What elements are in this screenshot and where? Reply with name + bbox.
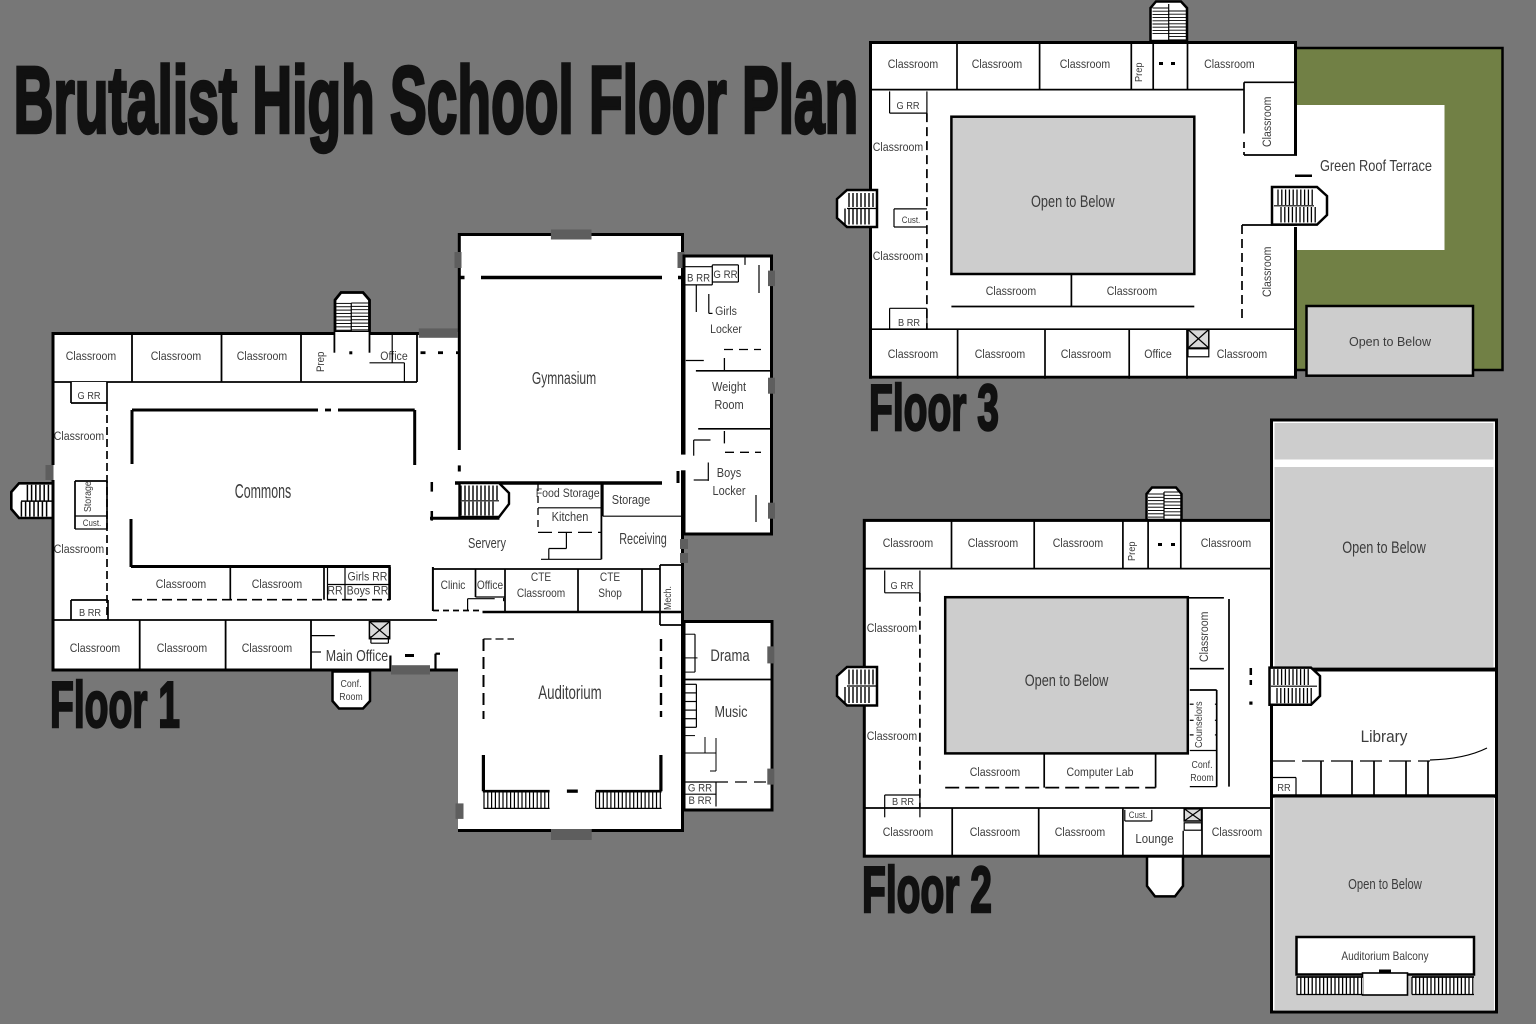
svg-text:Classroom: Classroom <box>517 587 565 600</box>
svg-text:Classroom: Classroom <box>970 826 1020 839</box>
svg-text:B RR: B RR <box>892 797 914 809</box>
svg-text:Room: Room <box>1190 771 1214 783</box>
svg-text:Classroom: Classroom <box>1107 285 1157 298</box>
svg-text:Servery: Servery <box>468 534 506 551</box>
svg-text:G RR: G RR <box>896 101 919 113</box>
svg-text:Girls: Girls <box>715 305 737 318</box>
svg-text:Auditorium Balcony: Auditorium Balcony <box>1341 950 1429 963</box>
svg-text:Storage: Storage <box>81 481 93 512</box>
svg-text:Food Storage: Food Storage <box>536 487 600 500</box>
svg-text:Drama: Drama <box>710 646 750 665</box>
svg-text:Auditorium: Auditorium <box>538 683 601 704</box>
svg-text:Lounge: Lounge <box>1135 831 1173 846</box>
svg-text:Classroom: Classroom <box>883 537 933 550</box>
svg-text:Kitchen: Kitchen <box>552 510 589 524</box>
svg-text:B RR: B RR <box>898 318 920 330</box>
svg-text:Prep: Prep <box>1134 62 1146 82</box>
svg-text:Classroom: Classroom <box>1061 348 1111 361</box>
svg-text:B RR: B RR <box>79 608 101 620</box>
svg-text:RR: RR <box>1277 783 1290 795</box>
svg-text:Open to Below: Open to Below <box>1342 538 1426 557</box>
svg-text:G RR: G RR <box>77 391 100 403</box>
svg-text:Green Roof Terrace: Green Roof Terrace <box>1320 158 1432 176</box>
svg-text:Music: Music <box>715 704 748 722</box>
svg-text:Classroom: Classroom <box>1060 58 1110 71</box>
svg-text:Classroom: Classroom <box>888 58 938 71</box>
svg-text:Classroom: Classroom <box>54 543 104 556</box>
svg-text:Classroom: Classroom <box>252 578 302 591</box>
svg-text:Classroom: Classroom <box>970 766 1020 779</box>
svg-text:Classroom: Classroom <box>242 642 292 655</box>
svg-text:Commons: Commons <box>235 480 291 503</box>
svg-text:Storage: Storage <box>612 493 651 507</box>
svg-text:Cust.: Cust. <box>83 518 101 529</box>
svg-text:Room: Room <box>339 690 363 702</box>
svg-text:Cust.: Cust. <box>1129 810 1147 821</box>
svg-text:Classroom: Classroom <box>1055 826 1105 839</box>
svg-text:Floor 2: Floor 2 <box>862 854 992 927</box>
svg-text:Classroom: Classroom <box>1198 612 1211 662</box>
svg-text:Classroom: Classroom <box>986 285 1036 298</box>
svg-text:Floor 1: Floor 1 <box>50 669 180 742</box>
svg-text:Classroom: Classroom <box>1261 97 1274 147</box>
svg-text:Classroom: Classroom <box>867 730 917 743</box>
svg-text:Classroom: Classroom <box>66 350 116 363</box>
svg-text:Classroom: Classroom <box>873 250 923 263</box>
svg-text:Classroom: Classroom <box>1212 826 1262 839</box>
svg-text:Classroom: Classroom <box>54 430 104 443</box>
svg-text:Office: Office <box>380 350 407 363</box>
svg-text:Open to Below: Open to Below <box>1349 335 1432 349</box>
svg-text:Prep: Prep <box>1127 541 1139 561</box>
svg-text:Clinic: Clinic <box>441 579 466 592</box>
svg-text:G RR: G RR <box>688 783 712 795</box>
svg-text:CTE: CTE <box>600 571 620 584</box>
svg-text:Main Office: Main Office <box>326 647 389 665</box>
svg-text:Classroom: Classroom <box>1053 537 1103 550</box>
svg-text:Classroom: Classroom <box>867 622 917 635</box>
svg-text:B RR: B RR <box>688 796 711 808</box>
svg-text:Classroom: Classroom <box>237 350 287 363</box>
svg-text:Locker: Locker <box>710 323 742 336</box>
svg-text:Boys RR: Boys RR <box>347 585 389 598</box>
svg-text:Receiving: Receiving <box>619 530 667 547</box>
svg-text:G RR: G RR <box>713 270 737 282</box>
svg-text:Classroom: Classroom <box>1204 58 1254 71</box>
svg-text:Open to Below: Open to Below <box>1031 192 1115 211</box>
svg-text:G RR: G RR <box>890 581 913 593</box>
svg-text:RR: RR <box>327 585 342 598</box>
svg-text:Classroom: Classroom <box>70 642 120 655</box>
svg-text:Classroom: Classroom <box>1201 537 1251 550</box>
svg-text:Open to Below: Open to Below <box>1348 875 1422 892</box>
svg-text:Classroom: Classroom <box>972 58 1022 71</box>
svg-text:Library: Library <box>1361 727 1409 746</box>
svg-text:Conf.: Conf. <box>1191 758 1212 770</box>
svg-text:Classroom: Classroom <box>883 826 933 839</box>
svg-text:Prep: Prep <box>316 351 328 372</box>
svg-text:Classroom: Classroom <box>873 141 923 154</box>
svg-text:Classroom: Classroom <box>968 537 1018 550</box>
svg-text:Classroom: Classroom <box>975 348 1025 361</box>
svg-text:Weight: Weight <box>712 380 747 394</box>
svg-text:Counselors: Counselors <box>1194 701 1206 748</box>
svg-text:Floor 3: Floor 3 <box>869 372 999 445</box>
svg-text:Classroom: Classroom <box>1217 348 1267 361</box>
svg-text:Room: Room <box>714 398 744 412</box>
svg-text:Girls RR: Girls RR <box>348 571 388 584</box>
svg-text:Classroom: Classroom <box>888 348 938 361</box>
svg-text:Conf.: Conf. <box>340 677 361 689</box>
svg-text:CTE: CTE <box>531 571 551 584</box>
svg-text:Classroom: Classroom <box>157 642 207 655</box>
svg-text:Shop: Shop <box>598 587 622 600</box>
svg-text:Locker: Locker <box>712 484 745 498</box>
svg-text:Classroom: Classroom <box>151 350 201 363</box>
svg-text:Brutalist High School Floor Pl: Brutalist High School Floor Plan <box>14 48 859 153</box>
svg-text:Cust.: Cust. <box>902 215 920 226</box>
svg-text:Classroom: Classroom <box>156 578 206 591</box>
svg-text:Office: Office <box>1144 348 1171 361</box>
svg-text:Classroom: Classroom <box>1261 247 1274 297</box>
svg-text:Computer Lab: Computer Lab <box>1067 766 1134 779</box>
svg-text:Gymnasium: Gymnasium <box>532 369 596 389</box>
svg-text:Mech.: Mech. <box>661 586 673 610</box>
svg-text:Boys: Boys <box>717 466 742 480</box>
svg-text:Office: Office <box>477 579 503 592</box>
svg-text:Open to Below: Open to Below <box>1025 671 1109 690</box>
svg-text:B RR: B RR <box>687 273 710 285</box>
